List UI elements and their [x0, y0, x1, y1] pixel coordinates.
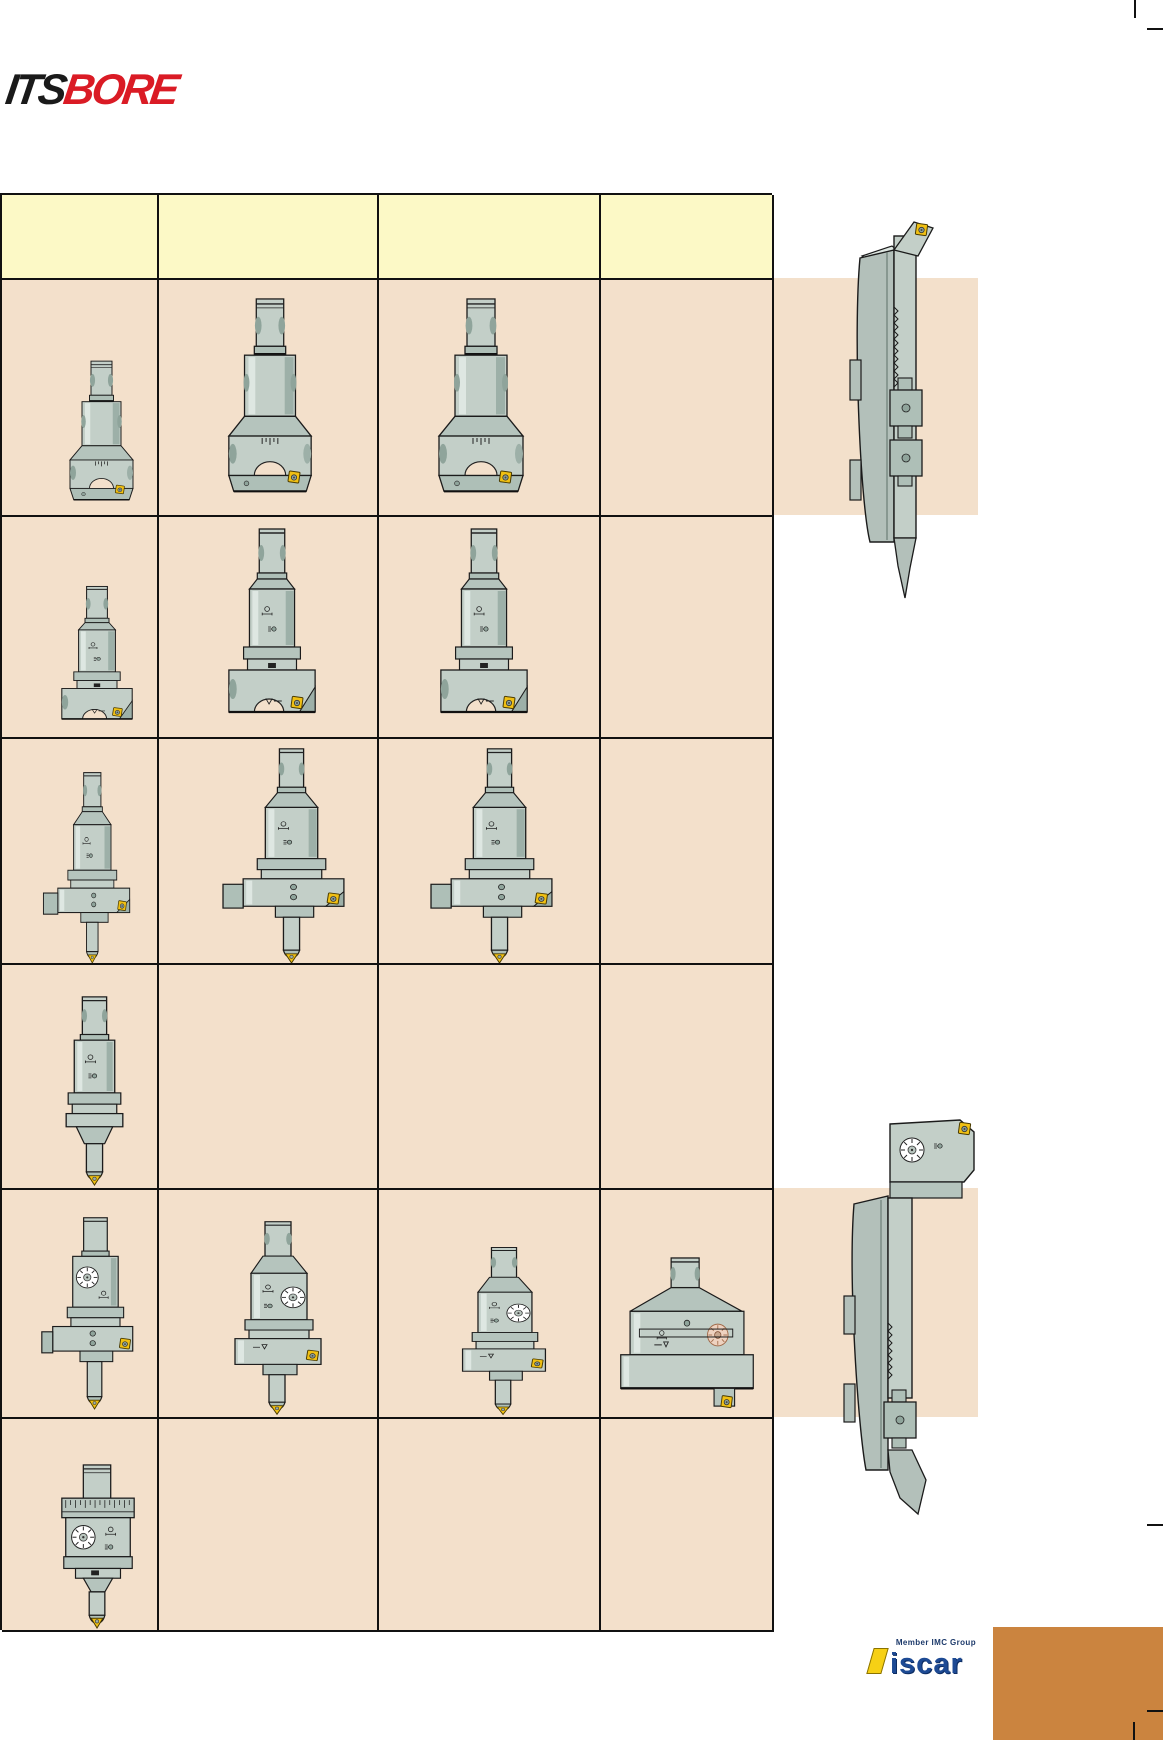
catalog-table: [0, 193, 772, 1630]
crop-mark-middle-horizontal: [1147, 1524, 1163, 1526]
cell-r4-c2: [159, 965, 379, 1190]
slim-boring-head-illustration: [52, 995, 138, 1187]
iscar-logo-block: Member IMC Group iscar: [858, 1638, 978, 1676]
itsbore-logo-bore: BORE: [61, 66, 180, 114]
cell-r6-c4: [601, 1419, 774, 1632]
itsbore-logo: ITSBORE: [3, 66, 180, 115]
crop-mark-top-vertical: [1134, 0, 1136, 18]
fine-boring-head-dial-large-illustration: [451, 1246, 557, 1416]
fine-boring-head-dial-arm-illustration: [40, 1216, 140, 1416]
rough-boring-head-small-illustration: [64, 359, 139, 514]
graduated-dial-boring-head-illustration: [54, 1463, 142, 1629]
crop-mark-bottom-vertical: [1133, 1722, 1135, 1740]
crop-mark-bottom-horizontal: [1147, 1710, 1163, 1712]
cell-r5-c3: [379, 1190, 601, 1419]
itsbore-logo-its: ITS: [3, 66, 68, 114]
cell-r3-c3: [379, 739, 601, 965]
header-cell-c1: [2, 195, 159, 280]
boring-bar-side-view-upper-illustration: [830, 212, 940, 602]
cell-r1-c1: [2, 280, 159, 517]
cell-r3-c4: [601, 739, 774, 965]
crop-mark-top-horizontal: [1147, 28, 1163, 30]
catalog-page: ITSBORE: [0, 0, 1163, 1740]
cell-r2-c2: [159, 517, 379, 739]
iscar-wordmark: iscar: [890, 1653, 963, 1676]
side-arm-boring-head-large-illustration: [429, 747, 565, 963]
fine-boring-head-dial-wide-illustration: [617, 1256, 757, 1414]
cell-r1-c3: [379, 280, 601, 517]
side-arm-boring-head-small-illustration: [42, 771, 139, 963]
cell-r4-c4: [601, 965, 774, 1190]
side-arm-boring-head-medium-illustration: [221, 747, 357, 963]
cell-r3-c2: [159, 739, 379, 965]
header-cell-c4: [601, 195, 774, 280]
cell-r6-c1: [2, 1419, 159, 1632]
cell-r3-c1: [2, 739, 159, 965]
orange-tab-block: [993, 1627, 1163, 1740]
header-cell-c3: [379, 195, 601, 280]
cell-r2-c3: [379, 517, 601, 739]
cell-r5-c2: [159, 1190, 379, 1419]
semi-finish-boring-head-medium-illustration: [223, 527, 321, 737]
semi-finish-boring-head-large-illustration: [435, 527, 533, 737]
rough-boring-head-medium-illustration: [221, 296, 319, 511]
cell-r1-c2: [159, 280, 379, 517]
cell-r2-c1: [2, 517, 159, 739]
cell-r1-c4: [601, 280, 774, 517]
boring-bar-side-view-lower-illustration: [828, 1118, 978, 1518]
fine-boring-head-dial-medium-illustration: [223, 1220, 333, 1416]
rough-boring-head-large-illustration: [431, 296, 531, 511]
cell-r4-c1: [2, 965, 159, 1190]
cell-r6-c2: [159, 1419, 379, 1632]
cell-r5-c1: [2, 1190, 159, 1419]
header-cell-c2: [159, 195, 379, 280]
iscar-diamond-icon: [866, 1648, 888, 1674]
cell-r4-c3: [379, 965, 601, 1190]
cell-r5-c4: [601, 1190, 774, 1419]
semi-finish-boring-head-small-illustration: [57, 585, 137, 737]
cell-r6-c3: [379, 1419, 601, 1632]
member-imc-group-label: Member IMC Group: [858, 1638, 976, 1647]
cell-r2-c4: [601, 517, 774, 739]
